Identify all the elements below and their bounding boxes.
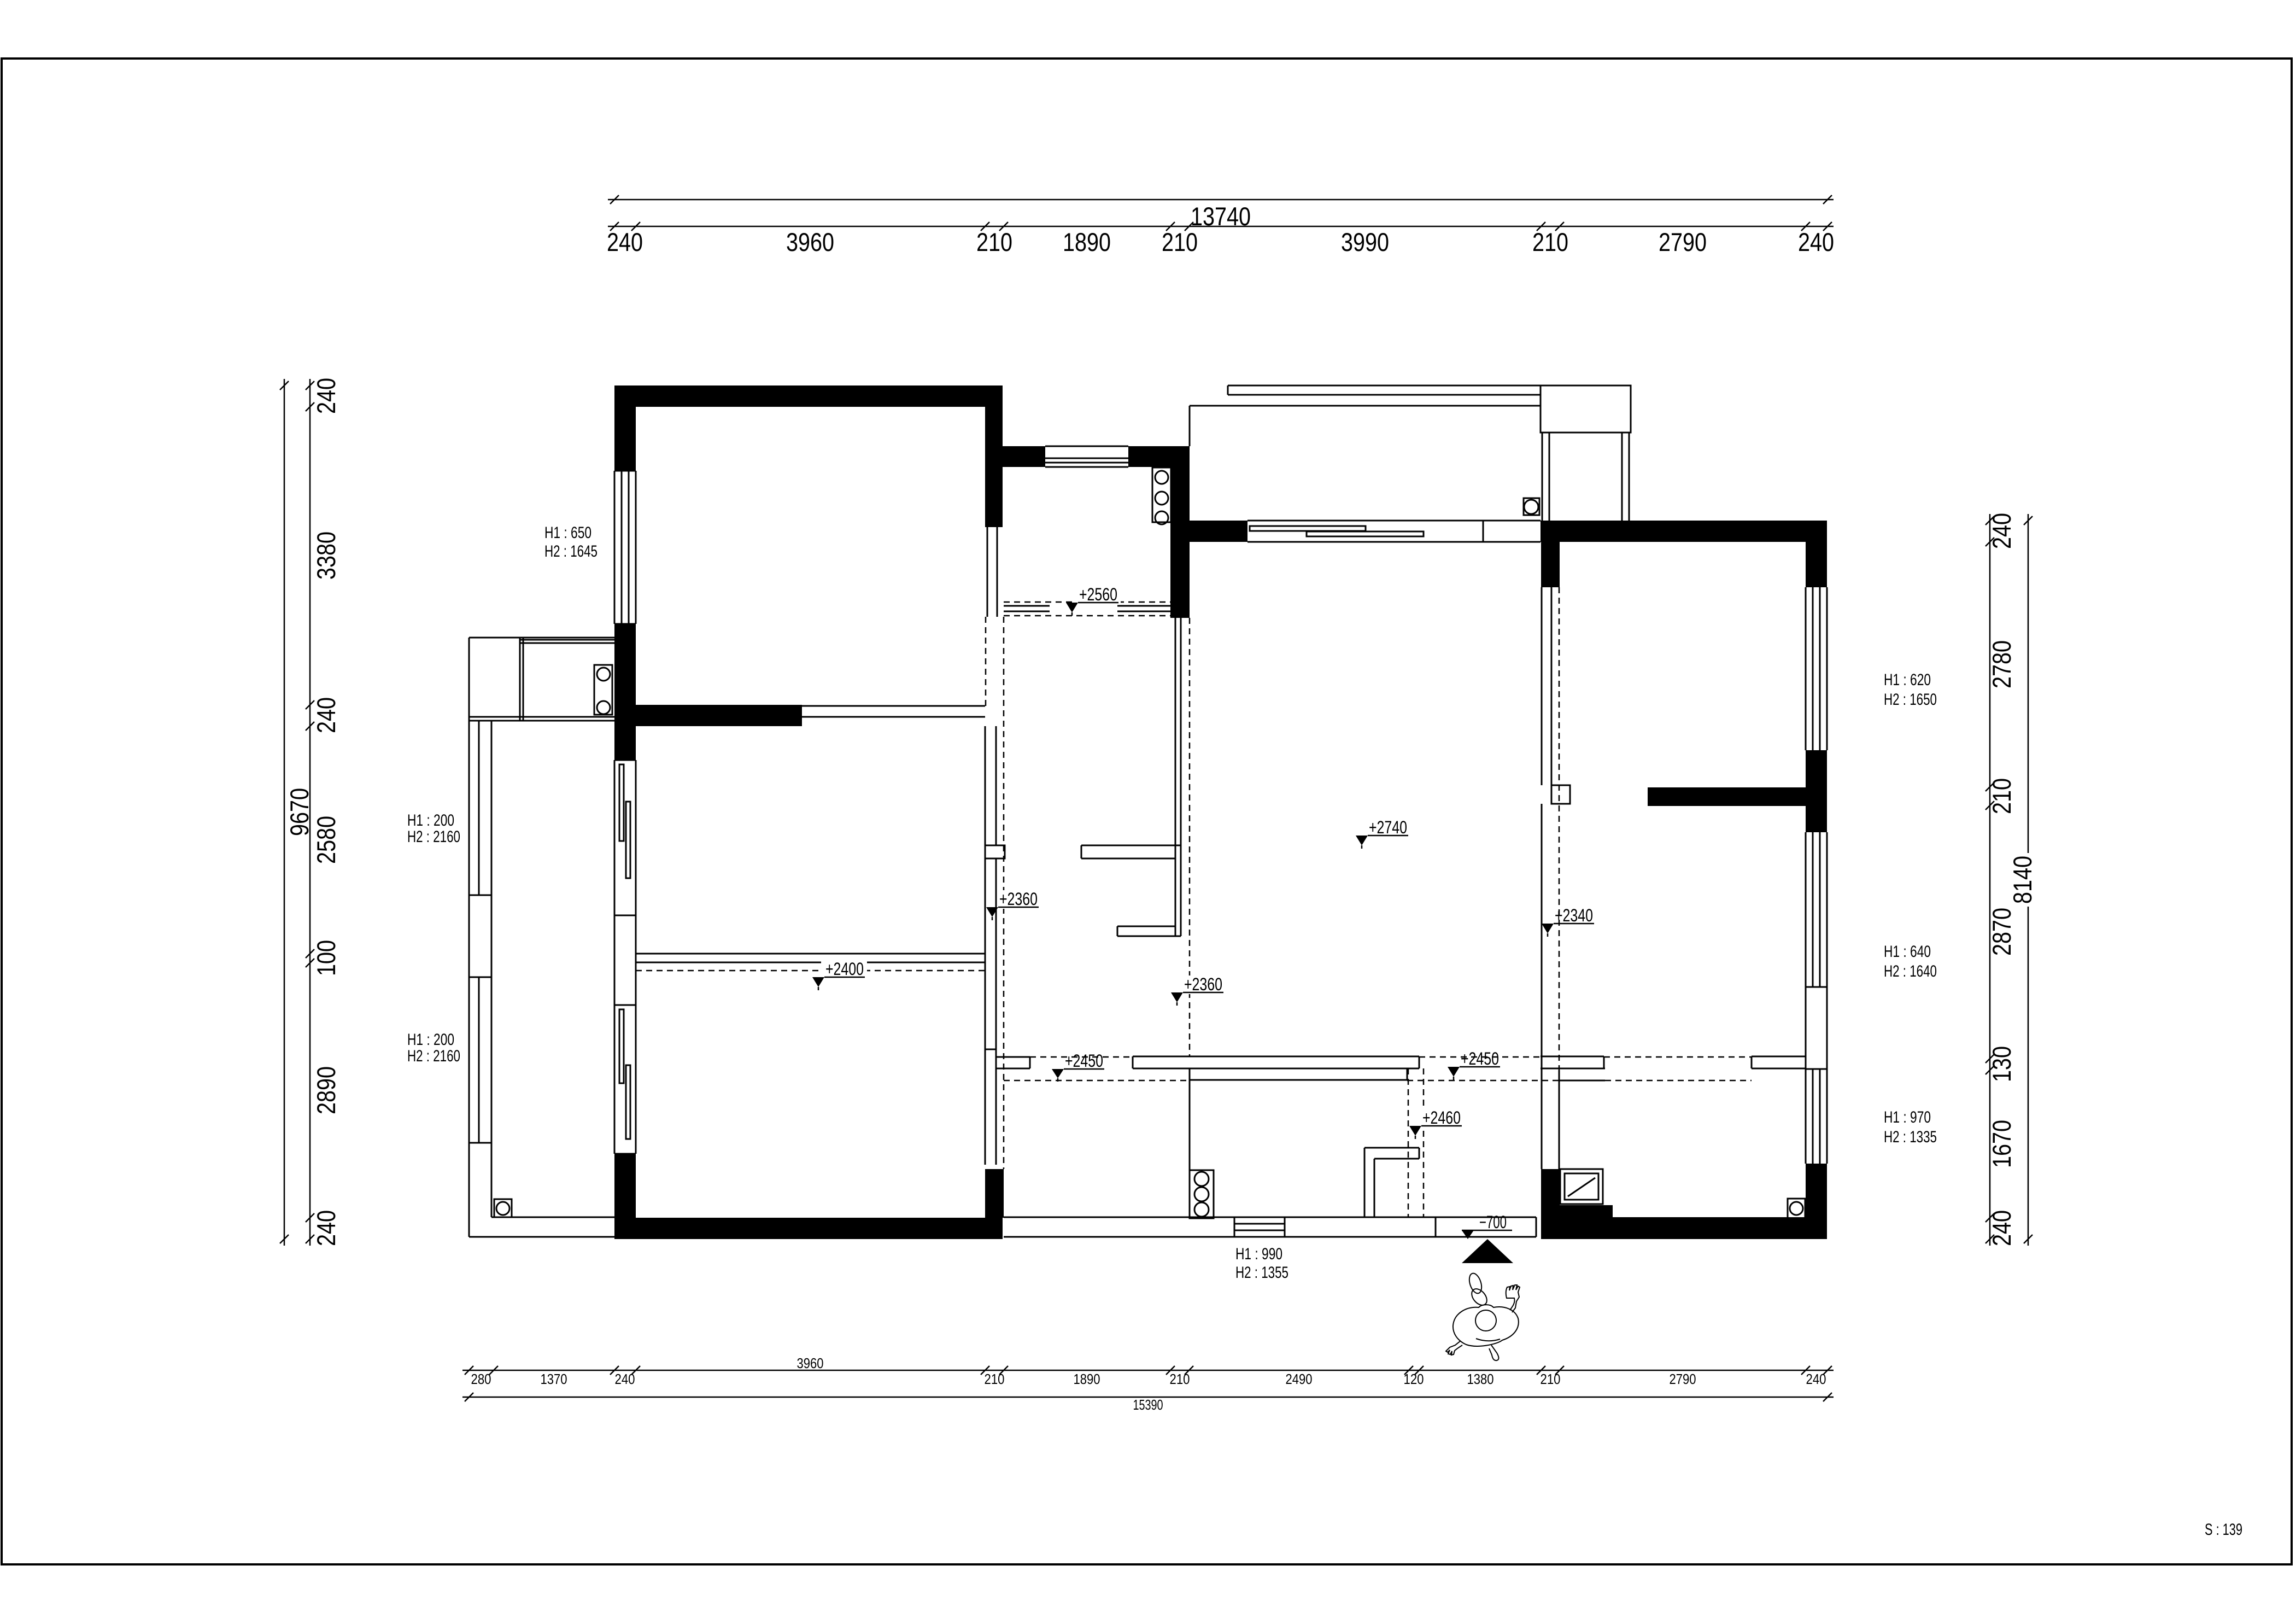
svg-text:13740: 13740 <box>1191 202 1251 231</box>
svg-text:210: 210 <box>1170 1371 1190 1387</box>
svg-text:210: 210 <box>985 1371 1005 1387</box>
svg-text:H1 : 970: H1 : 970 <box>1884 1108 1931 1126</box>
svg-text:3380: 3380 <box>312 531 341 580</box>
svg-text:8140: 8140 <box>2008 856 2037 904</box>
svg-text:2580: 2580 <box>312 816 341 864</box>
svg-text:+2560: +2560 <box>1079 585 1117 604</box>
svg-text:240: 240 <box>1987 513 2016 549</box>
svg-text:240: 240 <box>1806 1371 1826 1387</box>
svg-text:2890: 2890 <box>312 1066 341 1114</box>
svg-text:+2360: +2360 <box>1184 974 1222 994</box>
svg-text:+2450: +2450 <box>1065 1051 1103 1071</box>
svg-text:210: 210 <box>1541 1371 1561 1387</box>
svg-text:2490: 2490 <box>1286 1371 1313 1387</box>
svg-text:+2400: +2400 <box>825 959 864 979</box>
svg-text:2780: 2780 <box>1987 640 2016 688</box>
svg-text:+2450: +2450 <box>1461 1049 1499 1068</box>
svg-text:1670: 1670 <box>1987 1120 2016 1168</box>
svg-text:H1 : 200: H1 : 200 <box>407 1031 454 1049</box>
svg-text:H1 : 650: H1 : 650 <box>544 524 591 542</box>
svg-text:H2 : 2160: H2 : 2160 <box>407 1047 460 1065</box>
svg-text:H1 : 200: H1 : 200 <box>407 811 454 829</box>
svg-text:S : 139: S : 139 <box>2205 1521 2242 1539</box>
svg-text:240: 240 <box>312 697 341 733</box>
svg-text:240: 240 <box>312 1210 341 1246</box>
svg-text:240: 240 <box>1798 227 1834 256</box>
svg-text:210: 210 <box>1532 227 1568 256</box>
svg-text:+2340: +2340 <box>1555 906 1593 925</box>
svg-text:120: 120 <box>1404 1371 1424 1387</box>
svg-text:2790: 2790 <box>1659 227 1707 256</box>
svg-text:−700: −700 <box>1479 1212 1507 1232</box>
svg-text:1380: 1380 <box>1467 1371 1494 1387</box>
svg-text:280: 280 <box>471 1371 491 1387</box>
svg-text:2790: 2790 <box>1670 1371 1696 1387</box>
svg-text:240: 240 <box>615 1371 635 1387</box>
svg-text:H2 : 1645: H2 : 1645 <box>544 542 598 560</box>
svg-text:210: 210 <box>1987 778 2016 814</box>
svg-text:1890: 1890 <box>1063 227 1111 256</box>
svg-text:130: 130 <box>1987 1046 2016 1082</box>
svg-text:240: 240 <box>1987 1210 2016 1246</box>
svg-text:1890: 1890 <box>1074 1371 1100 1387</box>
svg-text:210: 210 <box>976 227 1012 256</box>
svg-text:H1 : 640: H1 : 640 <box>1884 943 1931 961</box>
svg-text:240: 240 <box>312 378 341 414</box>
svg-text:+2740: +2740 <box>1369 817 1407 837</box>
svg-text:15390: 15390 <box>1133 1397 1163 1413</box>
svg-text:H2 : 1335: H2 : 1335 <box>1884 1128 1937 1146</box>
svg-text:+2460: +2460 <box>1422 1108 1461 1128</box>
svg-text:H2 : 1640: H2 : 1640 <box>1884 962 1937 980</box>
svg-text:H2 : 2160: H2 : 2160 <box>407 828 460 846</box>
svg-text:+2360: +2360 <box>999 889 1038 909</box>
svg-text:3960: 3960 <box>797 1355 824 1371</box>
svg-text:3960: 3960 <box>786 227 834 256</box>
svg-text:3990: 3990 <box>1341 227 1389 256</box>
svg-text:240: 240 <box>607 227 643 256</box>
svg-text:H2 : 1355: H2 : 1355 <box>1235 1264 1288 1282</box>
svg-text:2870: 2870 <box>1987 908 2016 956</box>
svg-text:9670: 9670 <box>285 788 314 836</box>
svg-text:H2 : 1650: H2 : 1650 <box>1884 691 1937 709</box>
svg-text:H1 : 620: H1 : 620 <box>1884 671 1931 689</box>
svg-text:1370: 1370 <box>541 1371 567 1387</box>
svg-text:H1 : 990: H1 : 990 <box>1235 1245 1282 1263</box>
svg-text:210: 210 <box>1162 227 1198 256</box>
svg-text:100: 100 <box>312 940 341 976</box>
